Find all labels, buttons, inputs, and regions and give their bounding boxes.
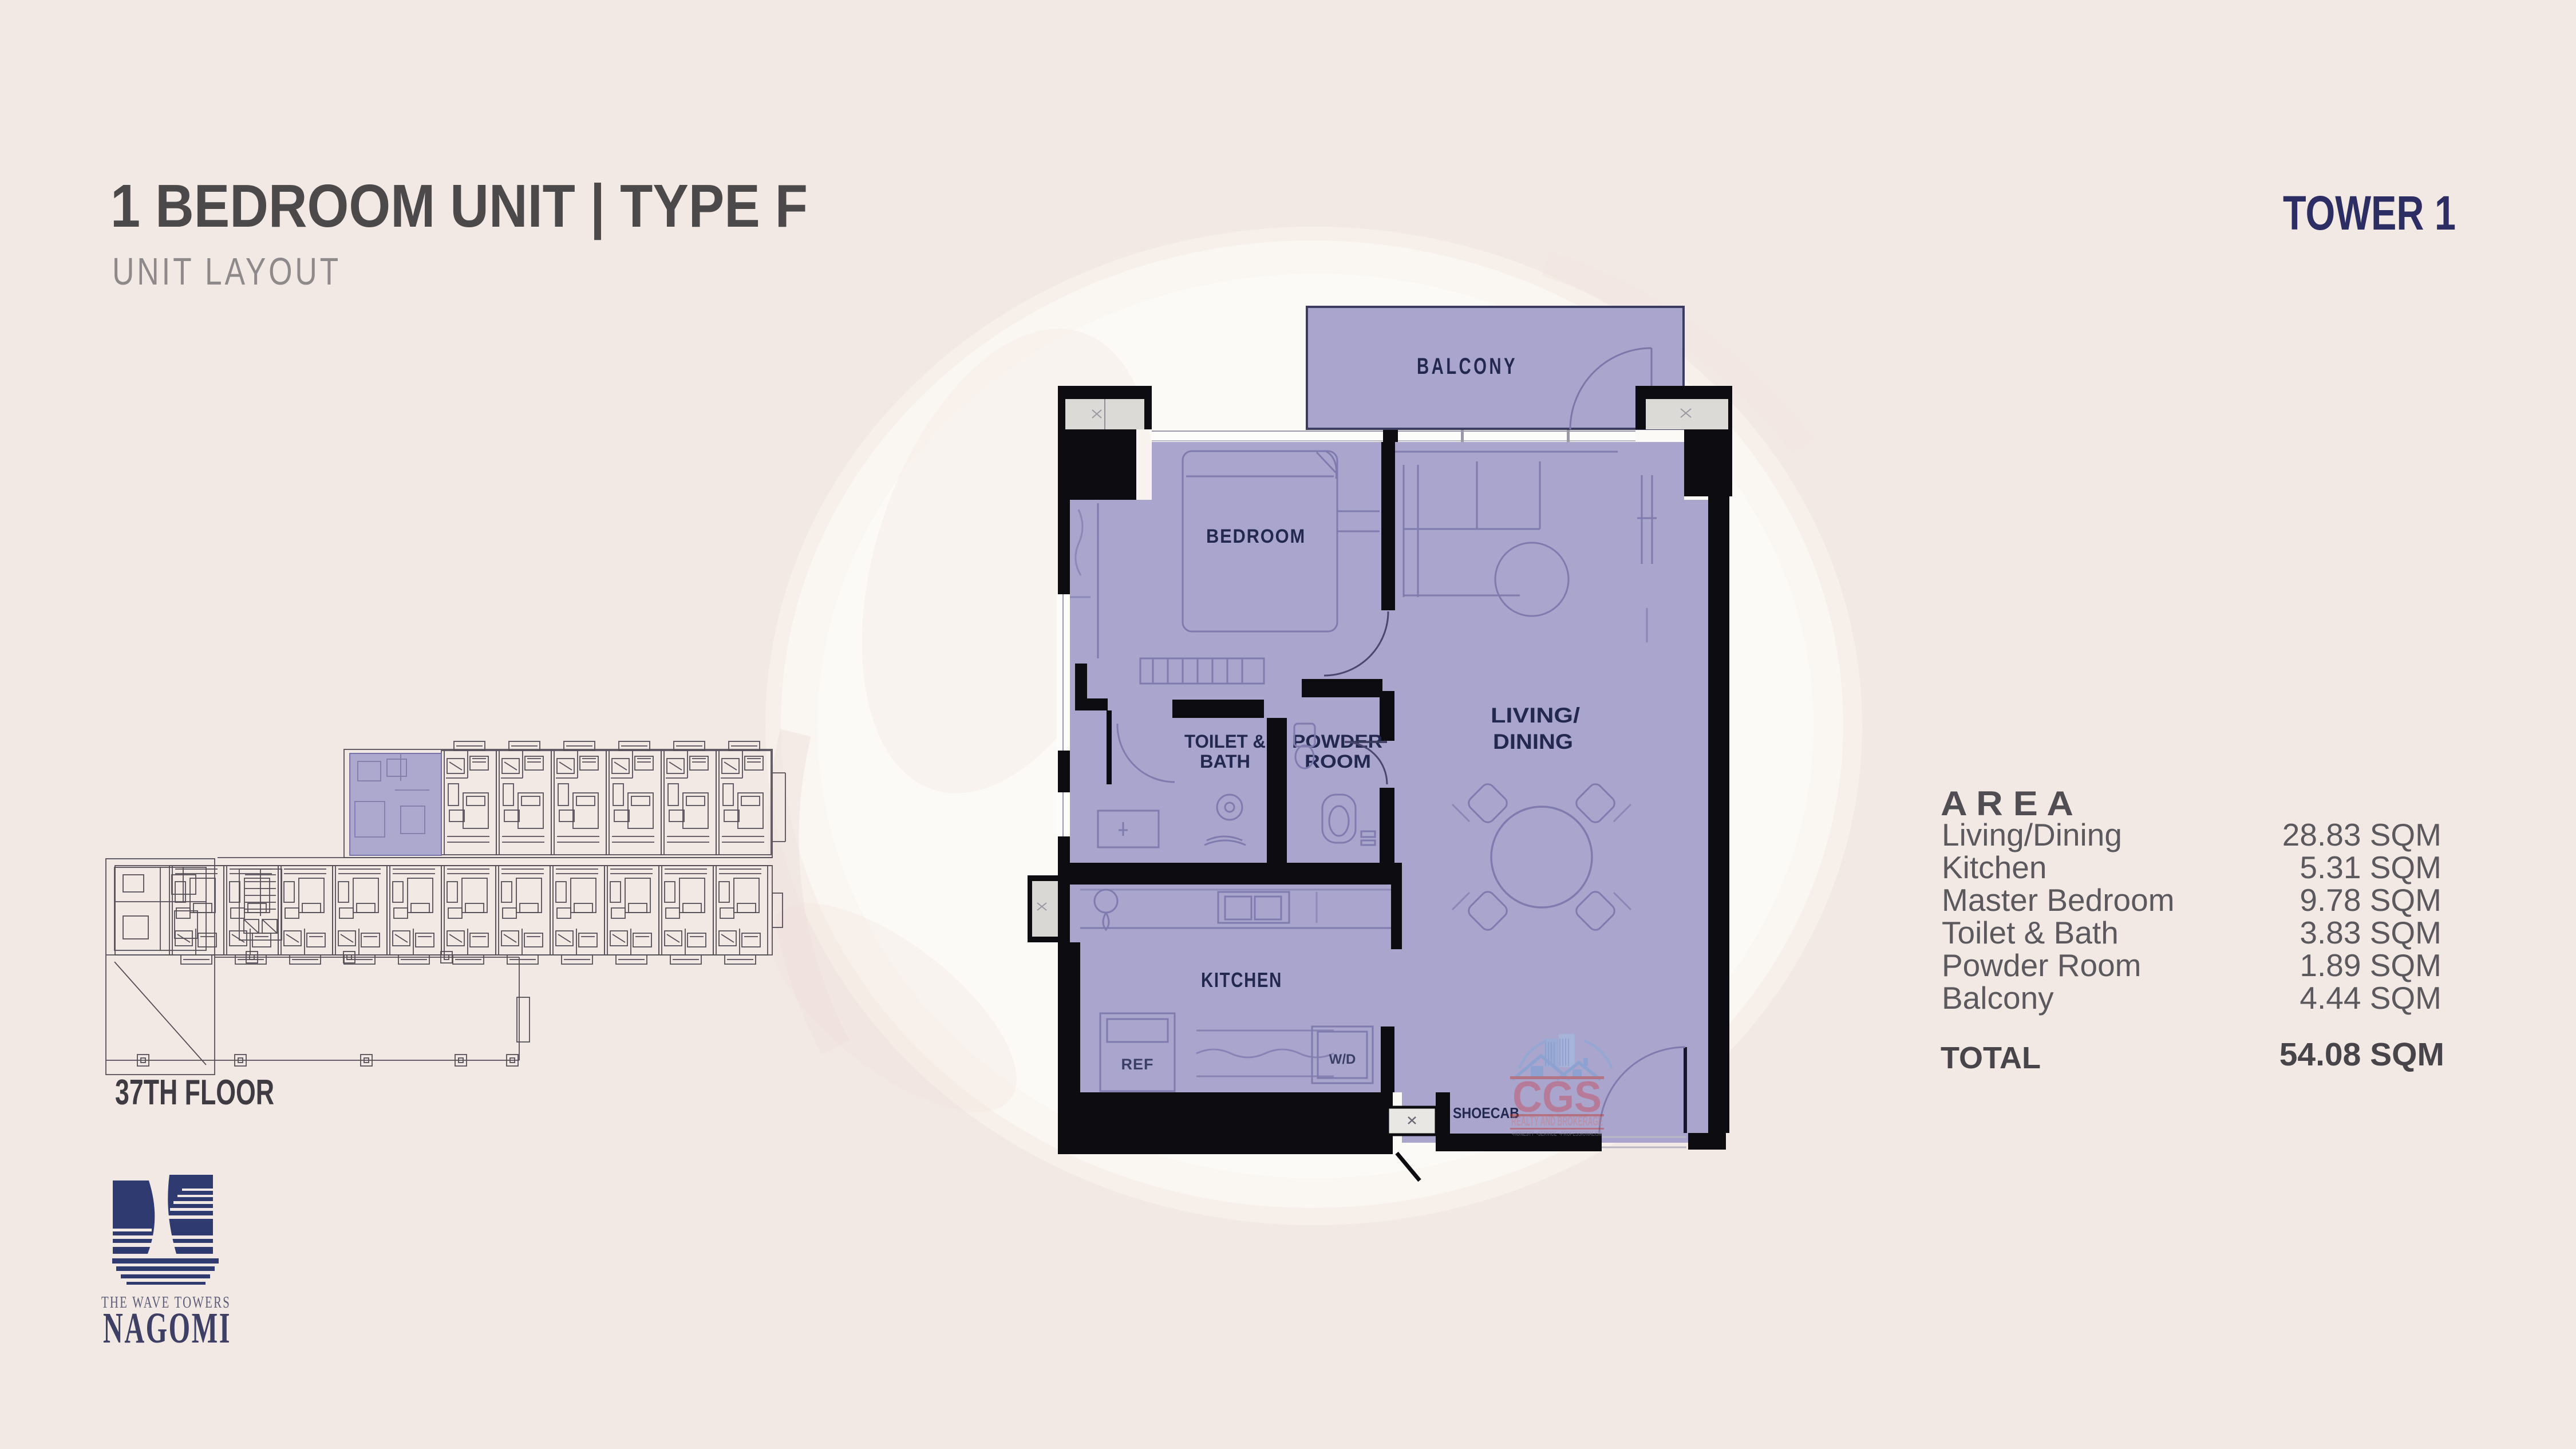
svg-text:1 BEDROOM UNIT | TYPE F: 1 BEDROOM UNIT | TYPE F (110, 172, 808, 240)
svg-text:Balcony: Balcony (1942, 980, 2054, 1016)
svg-text:REALTY AND BROKERAGE: REALTY AND BROKERAGE (1511, 1114, 1603, 1128)
svg-text:W/D: W/D (1329, 1052, 1356, 1067)
svg-text:UNIT LAYOUT: UNIT LAYOUT (112, 250, 341, 293)
svg-text:9.78 SQM: 9.78 SQM (2300, 882, 2441, 918)
svg-text:BEDROOM: BEDROOM (1206, 526, 1306, 547)
svg-text:TOWER 1: TOWER 1 (2283, 186, 2456, 240)
svg-text:5.31 SQM: 5.31 SQM (2300, 850, 2441, 885)
svg-text:Living/Dining: Living/Dining (1942, 817, 2122, 852)
svg-text:54.08 SQM: 54.08 SQM (2279, 1036, 2444, 1073)
svg-text:SHOECAB: SHOECAB (1453, 1104, 1519, 1122)
svg-text:37TH FLOOR: 37TH FLOOR (115, 1073, 274, 1112)
svg-text:KITCHEN: KITCHEN (1201, 968, 1282, 992)
svg-text:LIVING/: LIVING/ (1491, 704, 1580, 727)
svg-text:REF: REF (1121, 1056, 1154, 1073)
svg-text:NAGOMI: NAGOMI (103, 1304, 231, 1352)
svg-text:BALCONY: BALCONY (1417, 354, 1518, 379)
svg-text:TOTAL: TOTAL (1941, 1041, 2041, 1075)
svg-text:28.83 SQM: 28.83 SQM (2282, 817, 2441, 852)
svg-text:•HONESTY •SERVICE •PROFESSIO: •HONESTY •SERVICE •PROFESSIONALISM (1512, 1130, 1602, 1138)
svg-text:4.44 SQM: 4.44 SQM (2300, 980, 2441, 1016)
svg-text:BATH: BATH (1200, 751, 1250, 772)
svg-text:TOILET &: TOILET & (1184, 731, 1266, 752)
svg-text:Powder Room: Powder Room (1942, 947, 2141, 983)
svg-text:Kitchen: Kitchen (1942, 850, 2046, 885)
svg-text:DINING: DINING (1493, 730, 1573, 753)
svg-text:ROOM: ROOM (1305, 751, 1371, 772)
svg-text:1.89 SQM: 1.89 SQM (2300, 947, 2441, 983)
svg-text:3.83 SQM: 3.83 SQM (2300, 915, 2441, 950)
svg-text:Master Bedroom: Master Bedroom (1942, 882, 2175, 918)
svg-text:Toilet & Bath: Toilet & Bath (1942, 915, 2119, 950)
